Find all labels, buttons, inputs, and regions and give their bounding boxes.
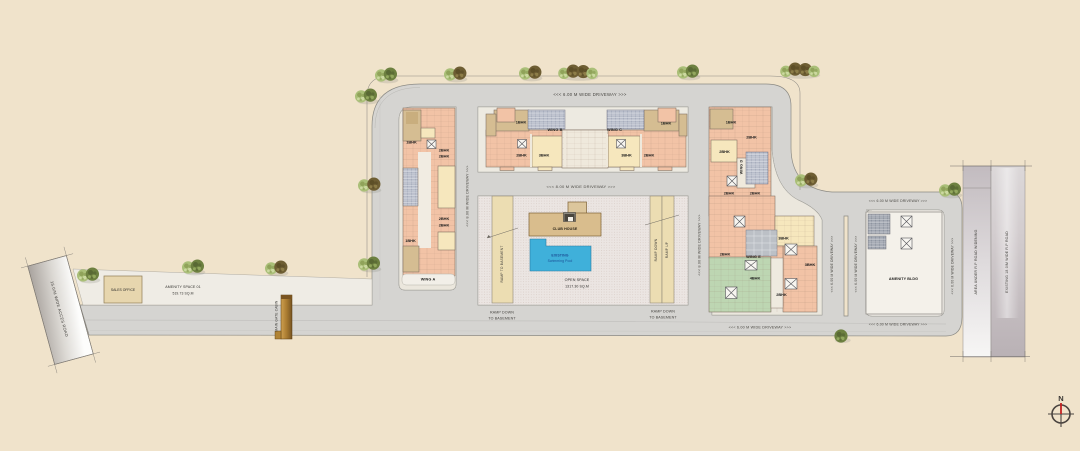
svg-text:WING D: WING D bbox=[740, 160, 744, 175]
svg-text:RAMP TO BASEMENT: RAMP TO BASEMENT bbox=[500, 245, 504, 282]
svg-text:EXISTING: EXISTING bbox=[551, 254, 568, 258]
svg-text:519.73 SQ.M: 519.73 SQ.M bbox=[172, 292, 193, 296]
svg-text:1BHK: 1BHK bbox=[516, 120, 527, 125]
svg-text:<<< 8.00 M WIDE DRIVEWAY >>>: <<< 8.00 M WIDE DRIVEWAY >>> bbox=[547, 184, 616, 189]
svg-text:<<< 6.00 M WIDE DRIVEWAY >>>: <<< 6.00 M WIDE DRIVEWAY >>> bbox=[869, 323, 927, 327]
svg-text:3BHK: 3BHK bbox=[778, 236, 789, 241]
svg-text:1317.30 SQ.M: 1317.30 SQ.M bbox=[565, 285, 589, 289]
svg-text:3BHK: 3BHK bbox=[805, 262, 816, 267]
svg-text:1BHK: 1BHK bbox=[726, 120, 737, 125]
svg-text:WING E: WING E bbox=[746, 254, 761, 259]
svg-text:<<< 6.00 M WIDE DRIVEWAY >>>: <<< 6.00 M WIDE DRIVEWAY >>> bbox=[854, 236, 858, 293]
svg-text:<<< 6.00 M WIDE DRIVEWAY >>>: <<< 6.00 M WIDE DRIVEWAY >>> bbox=[951, 238, 955, 295]
svg-text:AMENITY BLDG: AMENITY BLDG bbox=[889, 277, 918, 281]
svg-text:2BHK: 2BHK bbox=[439, 223, 450, 228]
svg-text:TO BASEMENT: TO BASEMENT bbox=[488, 317, 516, 321]
svg-text:2BHK: 2BHK bbox=[644, 153, 655, 158]
svg-text:RAMP DOWN: RAMP DOWN bbox=[654, 238, 658, 261]
svg-text:1BHK: 1BHK bbox=[405, 238, 416, 243]
svg-text:4BHK: 4BHK bbox=[750, 276, 761, 281]
svg-text:RAMP UP: RAMP UP bbox=[665, 241, 669, 258]
svg-text:<<< 6.00 M WIDE DRIVEWAY >>>: <<< 6.00 M WIDE DRIVEWAY >>> bbox=[729, 326, 792, 330]
svg-text:2BHK: 2BHK bbox=[720, 252, 731, 257]
svg-text:<<< 6.00 M WIDE DRIVEWAY >>>: <<< 6.00 M WIDE DRIVEWAY >>> bbox=[869, 199, 927, 203]
svg-text:3BHK: 3BHK bbox=[539, 153, 550, 158]
svg-text:1BHK: 1BHK bbox=[406, 140, 417, 145]
svg-text:2BHK: 2BHK bbox=[776, 292, 787, 297]
svg-text:TO BASEMENT: TO BASEMENT bbox=[649, 316, 677, 320]
svg-text:SALES OFFICE: SALES OFFICE bbox=[111, 288, 136, 292]
svg-text:CLUB HOUSE: CLUB HOUSE bbox=[553, 227, 578, 231]
svg-text:2BHK: 2BHK bbox=[746, 135, 757, 140]
svg-text:WING C: WING C bbox=[607, 127, 622, 132]
svg-text:2BHK: 2BHK bbox=[439, 154, 450, 159]
svg-text:AMENITY SPACE 01: AMENITY SPACE 01 bbox=[165, 285, 200, 289]
svg-text:<<< 8.00 M WIDE DRIVEWAY >>>: <<< 8.00 M WIDE DRIVEWAY >>> bbox=[466, 165, 470, 226]
svg-text:<<< 6.00 M WIDE DRIVEWAY >>>: <<< 6.00 M WIDE DRIVEWAY >>> bbox=[830, 236, 834, 293]
svg-text:RAMP DOWN: RAMP DOWN bbox=[651, 310, 675, 314]
svg-text:<<< 6.00 M WIDE DRIVEWAY >>>: <<< 6.00 M WIDE DRIVEWAY >>> bbox=[553, 92, 627, 97]
svg-text:<<< 8.00 M WIDE DRIVEWAY >>>: <<< 8.00 M WIDE DRIVEWAY >>> bbox=[698, 214, 702, 275]
svg-text:WING A: WING A bbox=[421, 278, 436, 282]
svg-text:AREA UNDER R.P ROAD WIDENING: AREA UNDER R.P ROAD WIDENING bbox=[974, 229, 978, 294]
svg-text:WING B: WING B bbox=[547, 127, 562, 132]
svg-text:EXISTING 18.0/M WIDE R.P ROAD: EXISTING 18.0/M WIDE R.P ROAD bbox=[1005, 231, 1009, 293]
svg-text:N: N bbox=[1058, 394, 1063, 403]
svg-text:2BHK: 2BHK bbox=[750, 191, 761, 196]
svg-text:2BHK: 2BHK bbox=[439, 148, 450, 153]
svg-text:2BHK: 2BHK bbox=[724, 191, 735, 196]
svg-text:OPEN SPACE: OPEN SPACE bbox=[565, 278, 590, 282]
svg-text:2BHK: 2BHK bbox=[439, 216, 450, 221]
svg-text:RAMP DOWN: RAMP DOWN bbox=[490, 311, 514, 315]
svg-text:2BHK: 2BHK bbox=[516, 153, 527, 158]
svg-text:1BHK: 1BHK bbox=[661, 121, 672, 126]
svg-text:3BHK: 3BHK bbox=[621, 153, 632, 158]
svg-text:Swimming Pool: Swimming Pool bbox=[548, 259, 573, 263]
svg-text:MAIN GATE CABIN: MAIN GATE CABIN bbox=[275, 300, 279, 331]
svg-text:2BHK: 2BHK bbox=[719, 149, 730, 154]
